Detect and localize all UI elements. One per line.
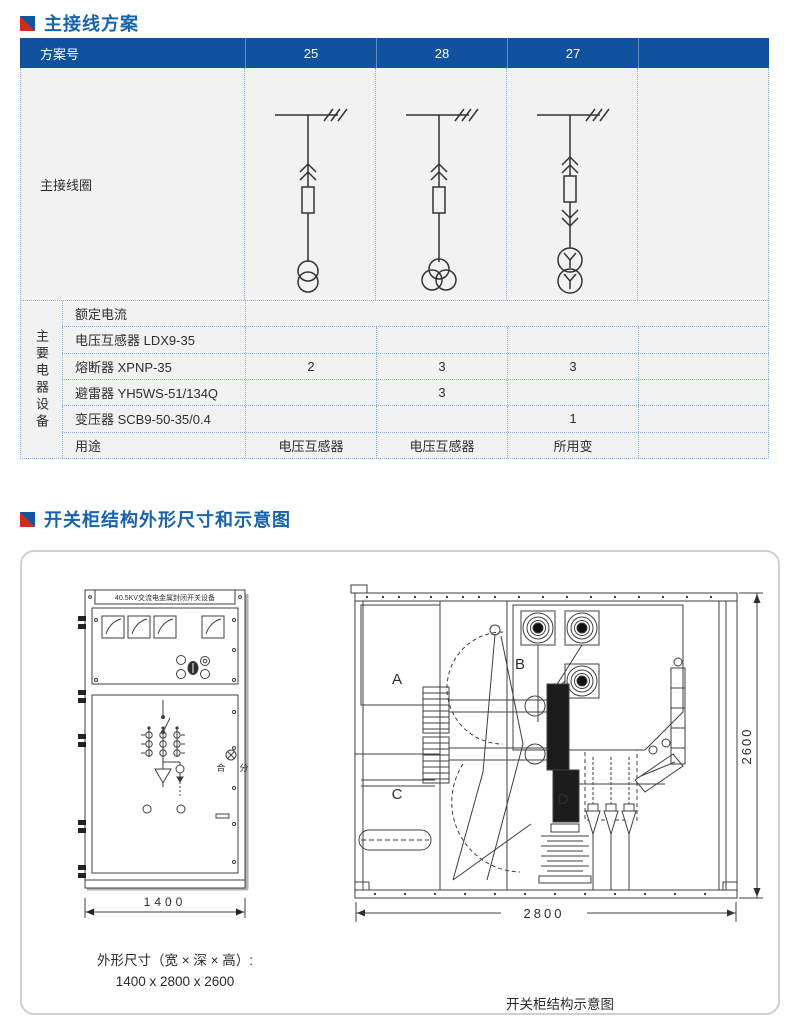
cabinet-front-drawing: 40.5KV交流电金属封闭开关设备 合 分 1400 [60,572,280,937]
open-switch-label: 分 [239,763,248,773]
table-row-fuse: 熔断器 XPNP-35 2 3 3 [62,353,769,379]
main-wiring-table: 方案号 25 28 27 主接线圈 [20,38,769,459]
table-header-row: 方案号 25 28 27 [20,38,769,68]
section-marker-icon [20,512,35,527]
scheme-empty-cell [637,68,768,300]
outline-size-value: 1400 x 2800 x 2600 [30,971,320,992]
section1-heading: 主接线方案 [44,10,139,36]
compartment-b-label: B [515,656,525,673]
depth-dimension: 2800 [524,906,565,921]
section-marker-icon [20,16,35,31]
compartment-c-label: C [392,786,403,803]
cabinet-nameplate: 40.5KV交流电金属封闭开关设备 [115,593,215,602]
section2-title: 开关柜结构外形尺寸和示意图 [20,506,291,532]
header-scheme-27: 27 [507,38,638,68]
header-scheme-25: 25 [245,38,376,68]
scheme-25-diagram [244,68,375,300]
section2-heading: 开关柜结构外形尺寸和示意图 [44,506,291,532]
merged-empty-cell [245,301,769,326]
table-row-arrester: 避雷器 YH5WS-51/134Q 3 [62,379,769,405]
diagram-row-label: 主接线圈 [21,68,244,300]
header-scheme-label: 方案号 [20,38,245,68]
section1-title: 主接线方案 [20,10,139,36]
table-row-usage: 用途 电压互感器 电压互感器 所用变 [62,432,769,458]
compartment-d-label: D [558,791,569,808]
cabinet-section-drawing: A B C D 2600 2800 [335,572,775,947]
table-row-voltage-transformer: 电压互感器 LDX9-35 [62,326,769,352]
section-caption-title: 开关柜结构示意图 [350,994,770,1015]
outline-size-label: 外形尺寸（宽 × 深 × 高）: [30,950,320,971]
close-switch-label: 合 [216,762,225,773]
equipment-group-label: 主要电器设备 [21,301,62,458]
page: 主接线方案 方案号 25 28 27 主接线圈 [0,0,800,1030]
width-dimension: 1400 [144,895,187,909]
table-row-rated-current: 额定电流 [62,301,769,326]
scheme-27-diagram [506,68,637,300]
equipment-rows: 主要电器设备 额定电流 电压互感器 LDX9-35 熔断器 XP [21,300,768,458]
equipment-row-list: 额定电流 电压互感器 LDX9-35 熔断器 XPNP-35 2 3 [62,301,769,458]
section-view-caption: 开关柜结构示意图 A 继电器仪表室 B 母线室 C 断路器室 D 电缆室 [350,952,770,1030]
scheme-28-diagram [375,68,506,300]
compartment-a-label: A [392,671,402,688]
diagram-row: 主接线圈 [21,68,768,300]
front-view-caption: 外形尺寸（宽 × 深 × 高）: 1400 x 2800 x 2600 [30,950,320,992]
table-body: 主接线圈 [20,68,769,459]
table-row-transformer: 变压器 SCB9-50-35/0.4 1 [62,405,769,431]
header-scheme-empty [638,38,769,68]
header-scheme-28: 28 [376,38,507,68]
height-dimension: 2600 [739,728,754,765]
